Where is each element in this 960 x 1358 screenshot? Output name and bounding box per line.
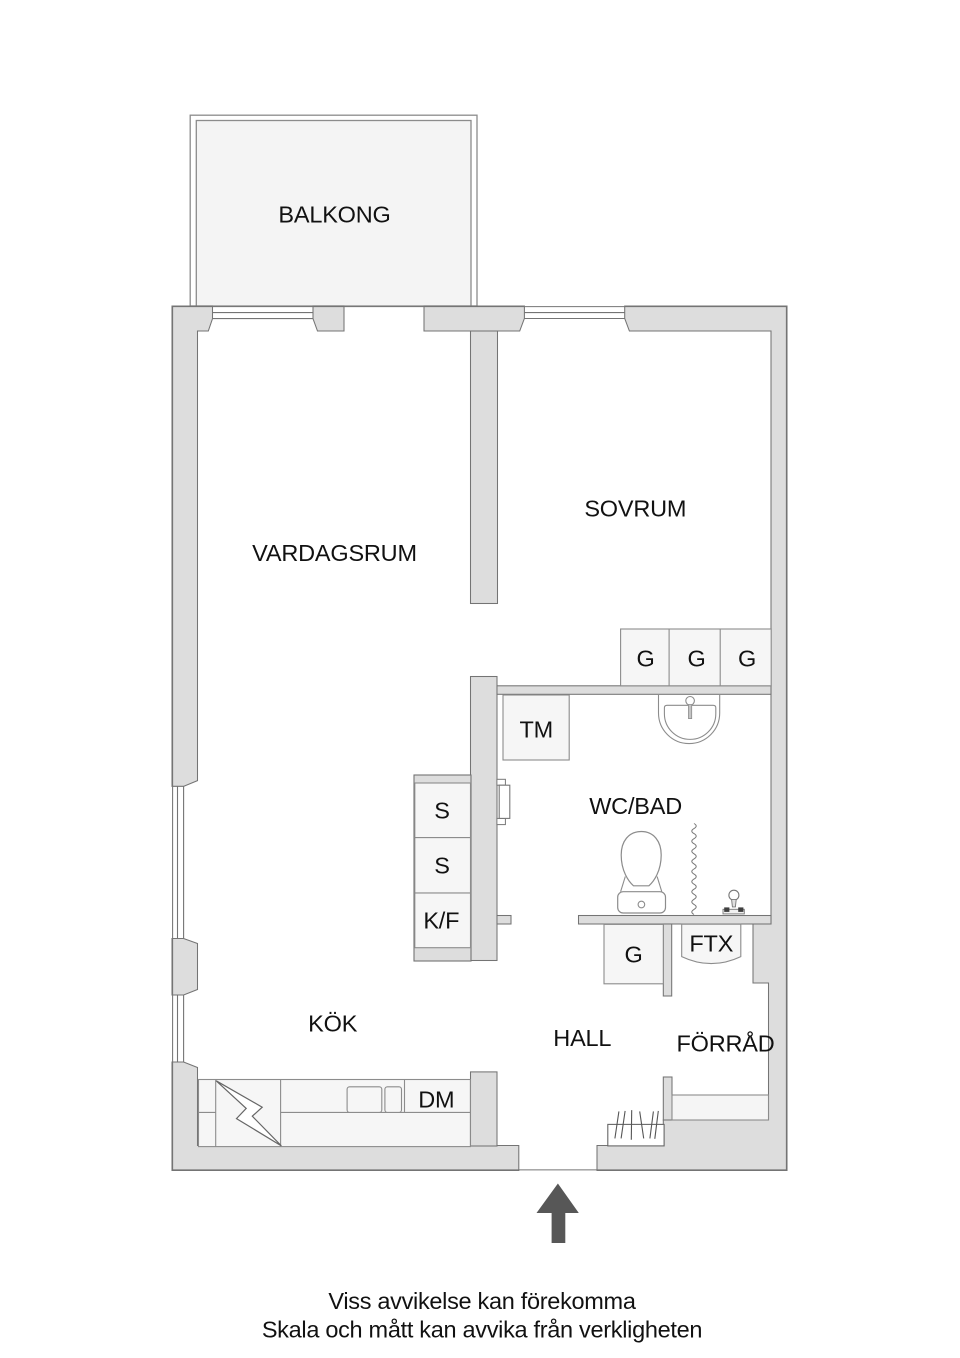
svg-text:G: G	[738, 646, 756, 672]
svg-text:Viss avvikelse kan förekomma: Viss avvikelse kan förekomma	[328, 1288, 636, 1314]
svg-text:BALKONG: BALKONG	[278, 202, 390, 228]
svg-text:K/F: K/F	[423, 907, 459, 933]
svg-text:TM: TM	[520, 717, 554, 743]
svg-text:S: S	[434, 852, 449, 878]
svg-text:KÖK: KÖK	[308, 1011, 358, 1037]
svg-text:G: G	[636, 646, 654, 672]
svg-text:FÖRRÅD: FÖRRÅD	[676, 1029, 774, 1056]
svg-text:SOVRUM: SOVRUM	[584, 496, 686, 522]
svg-text:HALL: HALL	[553, 1025, 611, 1051]
svg-text:Skala och mått kan avvika från: Skala och mått kan avvika från verklighe…	[262, 1316, 702, 1342]
svg-text:FTX: FTX	[689, 931, 733, 957]
svg-text:WC/BAD: WC/BAD	[589, 793, 682, 819]
svg-text:VARDAGSRUM: VARDAGSRUM	[252, 540, 417, 566]
svg-text:G: G	[687, 646, 705, 672]
svg-text:DM: DM	[418, 1086, 454, 1112]
svg-text:S: S	[434, 797, 449, 823]
svg-text:G: G	[624, 942, 642, 968]
